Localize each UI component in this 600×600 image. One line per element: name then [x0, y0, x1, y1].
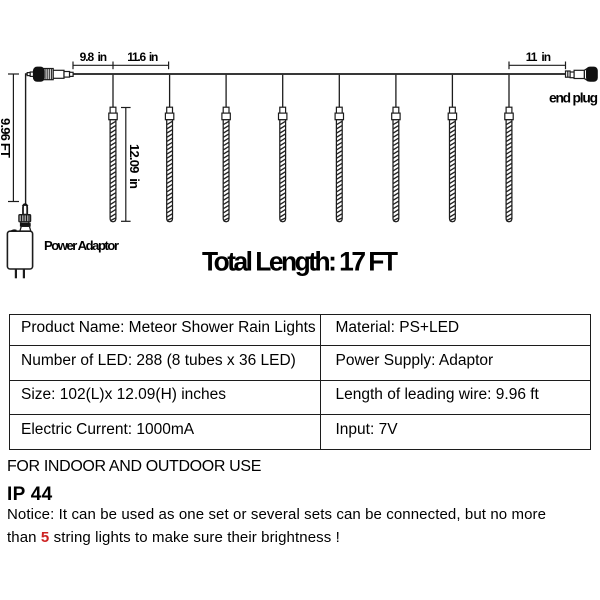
- svg-text:12.09 in: 12.09 in: [127, 144, 142, 189]
- svg-text:end plug: end plug: [549, 90, 598, 105]
- svg-text:11.6 in: 11.6 in: [127, 50, 158, 64]
- svg-text:9.96 FT: 9.96 FT: [0, 118, 13, 158]
- svg-text:Total Length: 17 FT: Total Length: 17 FT: [202, 247, 398, 277]
- svg-text:Power Adaptor: Power Adaptor: [44, 238, 119, 253]
- svg-text:11 in: 11 in: [526, 50, 551, 64]
- svg-text:9.8 in: 9.8 in: [80, 50, 108, 64]
